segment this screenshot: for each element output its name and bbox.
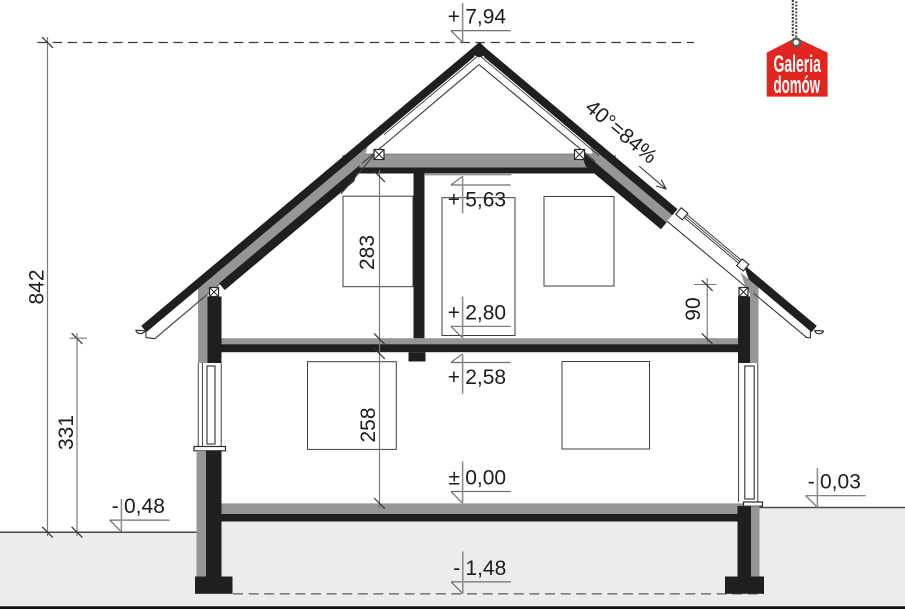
svg-text:1,48: 1,48 bbox=[465, 557, 506, 580]
svg-text:+: + bbox=[448, 301, 460, 324]
svg-text:-: - bbox=[808, 471, 815, 494]
svg-text:7,94: 7,94 bbox=[465, 6, 506, 29]
svg-text:0,03: 0,03 bbox=[820, 471, 861, 494]
svg-text:+: + bbox=[448, 188, 460, 211]
svg-text:2,80: 2,80 bbox=[465, 301, 506, 324]
svg-text:+: + bbox=[448, 366, 460, 389]
svg-text:0,48: 0,48 bbox=[124, 495, 165, 518]
svg-text:domów: domów bbox=[774, 72, 821, 99]
svg-text:2,58: 2,58 bbox=[465, 366, 506, 389]
svg-text:-: - bbox=[112, 495, 119, 518]
svg-text:842: 842 bbox=[26, 269, 49, 304]
svg-text:±: ± bbox=[448, 467, 460, 490]
svg-text:-: - bbox=[453, 557, 460, 580]
svg-text:331: 331 bbox=[55, 415, 78, 450]
svg-text:5,63: 5,63 bbox=[465, 188, 506, 211]
svg-text:+: + bbox=[448, 6, 460, 29]
svg-text:90: 90 bbox=[682, 297, 705, 320]
svg-text:0,00: 0,00 bbox=[465, 467, 506, 490]
svg-text:258: 258 bbox=[357, 407, 380, 442]
svg-text:283: 283 bbox=[356, 235, 379, 270]
